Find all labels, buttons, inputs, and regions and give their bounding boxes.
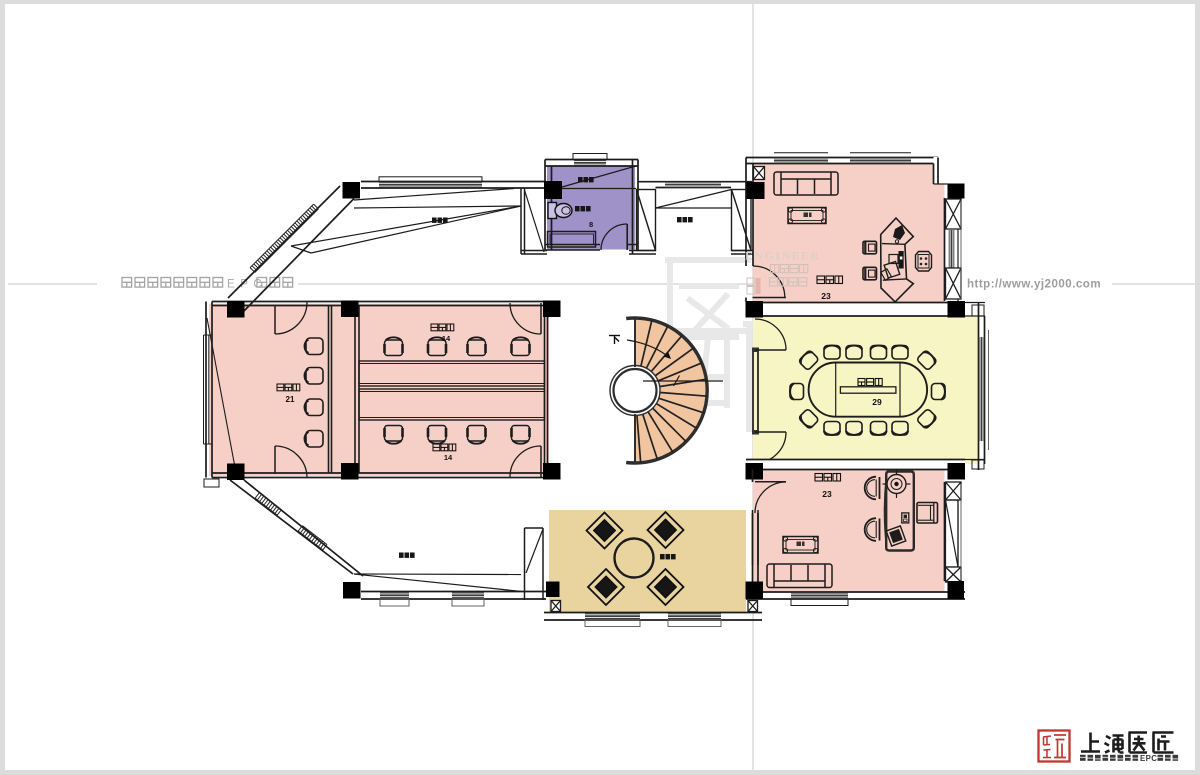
- svg-text:14: 14: [444, 453, 453, 462]
- svg-text:EPC: EPC: [1140, 754, 1157, 763]
- svg-text:29: 29: [872, 397, 882, 407]
- svg-text:14: 14: [442, 334, 451, 343]
- svg-text:23: 23: [822, 489, 832, 499]
- svg-text:http://www.yj2000.com: http://www.yj2000.com: [967, 279, 1101, 291]
- svg-text:21: 21: [286, 395, 295, 404]
- svg-text:23: 23: [821, 291, 831, 301]
- svg-text:8: 8: [589, 220, 593, 229]
- svg-text:ENGINEER: ENGINEER: [745, 251, 821, 263]
